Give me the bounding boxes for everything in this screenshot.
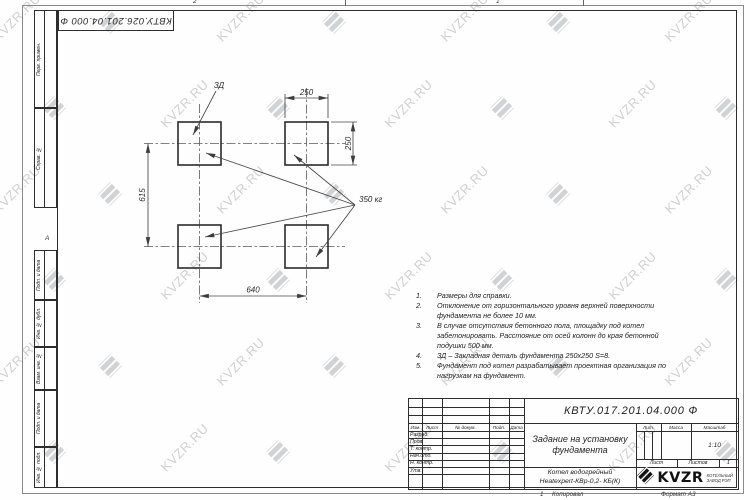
mass-label: Масса — [661, 423, 691, 431]
logo-sub-line2: ЗАВОД РЭП — [707, 478, 731, 483]
sheets-value: 1 — [719, 459, 738, 467]
zone-number-2: 2 — [193, 0, 197, 5]
leader-lines — [193, 91, 355, 257]
zone-tick — [583, 0, 584, 6]
margin-label: Подп. и дата — [35, 391, 44, 446]
dim-bottom-640: 640 — [246, 286, 260, 295]
margin-box: Перв. примен. — [34, 10, 57, 108]
logo-text: KVZR — [657, 470, 703, 486]
note-number: 2. — [414, 301, 430, 321]
notes-list: 1.Размеры для справки. 2.Отклонение от г… — [414, 291, 726, 381]
copied-label: Копировал — [552, 491, 583, 498]
col-podp: Подп. — [489, 423, 509, 431]
margin-label: Инв. № подл. — [35, 448, 44, 487]
row-razrab: Разраб. — [410, 432, 441, 439]
title-block: КВТУ.017.201.04.000 Ф Изм. Лист № докум.… — [408, 398, 739, 490]
note-number: 3. — [414, 321, 430, 351]
divider — [44, 391, 45, 446]
note-item: 3.В случае отсутствия бетонного пола, пл… — [414, 321, 726, 351]
margin-label: Взам. инв. № — [35, 348, 44, 389]
dim-top-250: 250 — [299, 88, 314, 97]
centerlines — [144, 88, 345, 303]
margin-label: Справ. № — [35, 109, 44, 207]
note-number: 4. — [414, 351, 430, 361]
scale-label: Масштаб — [691, 423, 738, 431]
margin-box: Инв. № подл. — [34, 447, 57, 488]
margin-label: Инв. № дубл. — [35, 301, 44, 346]
row-nkontr: Н. контр. — [410, 460, 441, 467]
sheets-label: Листов — [677, 459, 719, 467]
col-data: Дата — [509, 423, 524, 431]
doc-designation: КВТУ.017.201.04.000 Ф — [524, 399, 738, 423]
note-item: 5.Фундамент под котел разрабатывает прое… — [414, 361, 726, 381]
dim-right-250: 250 — [344, 136, 353, 151]
col-izm: Изм. — [409, 423, 422, 431]
product-line1: Котел водогрейный — [548, 469, 613, 478]
note-text: Фундамент под котел разрабатывает проект… — [437, 361, 689, 381]
margin-box: Подп. и дата — [34, 390, 57, 447]
row-nachotd: Нач.отд. — [410, 453, 441, 460]
dim-left-615: 615 — [138, 188, 147, 202]
margin-box: Подп. и дата — [34, 250, 57, 300]
note-item: 1.Размеры для справки. — [414, 291, 726, 301]
margin-label: Перв. примен. — [35, 11, 44, 107]
divider — [44, 109, 45, 207]
format-label: Формат А3 — [661, 491, 695, 498]
divider — [44, 11, 45, 107]
copy-number: 1 — [540, 491, 544, 498]
zone-number-1: 1 — [496, 0, 500, 5]
col-docnum: № докум. — [442, 423, 489, 431]
note-text: ЗД – Закладная деталь фундамента 250х250… — [437, 351, 689, 361]
sheet-label: Лист — [636, 459, 677, 467]
logo-subtext: КОТЕЛЬНЫЙ ЗАВОД РЭП — [707, 473, 737, 483]
note-text: Размеры для справки. — [437, 291, 689, 301]
note-text: В случае отсутствия бетонного пола, площ… — [437, 321, 689, 351]
zone-letter-a: А — [45, 235, 49, 242]
lit-label: Лит. — [636, 423, 661, 431]
note-number: 5. — [414, 361, 430, 381]
note-text: Отклонение от горизонтального уровня вер… — [437, 301, 689, 321]
doc-title: Задание на установку фундамента — [524, 423, 636, 467]
kvzr-logo-icon — [637, 467, 654, 489]
product-line2: Heatexpert-КВр-0,2- КБ(К) — [540, 478, 621, 487]
divider — [44, 348, 45, 389]
margin-box: Инв. № дубл. — [34, 300, 57, 347]
note-item: 2.Отклонение от горизонтального уровня в… — [414, 301, 726, 321]
embed-detail-label: ЗД — [214, 81, 225, 90]
margin-label: Подп. и дата — [35, 251, 44, 299]
product-name: Котел водогрейный Heatexpert-КВр-0,2- КБ… — [524, 467, 636, 489]
row-prov: Пров. — [410, 439, 441, 446]
col-list: Лист — [422, 423, 442, 431]
company-logo: KVZR КОТЕЛЬНЫЙ ЗАВОД РЭП — [636, 467, 738, 489]
note-item: 4.ЗД – Закладная деталь фундамента 250х2… — [414, 351, 726, 361]
drawing-sheet: KVZR.RUKVZR.RUKVZR.RUKVZR.RUKVZR.RUKVZR.… — [0, 0, 750, 500]
margin-box: Взам. инв. № — [34, 347, 57, 390]
divider — [44, 448, 45, 487]
divider — [44, 301, 45, 346]
note-number: 1. — [414, 291, 430, 301]
load-label: 350 кг — [359, 195, 382, 204]
rotated-designation-text: КВТУ.026.201.04.000 Ф — [60, 15, 172, 26]
margin-box: Справ. № — [34, 108, 57, 208]
row-utv: Утв. — [410, 468, 441, 475]
divider — [44, 251, 45, 299]
zone-tick — [345, 0, 346, 6]
row-tkontr: Т. контр. — [410, 446, 441, 453]
rotated-designation-box: КВТУ.026.201.04.000 Ф — [58, 10, 174, 31]
scale-value: 1:10 — [691, 431, 738, 459]
